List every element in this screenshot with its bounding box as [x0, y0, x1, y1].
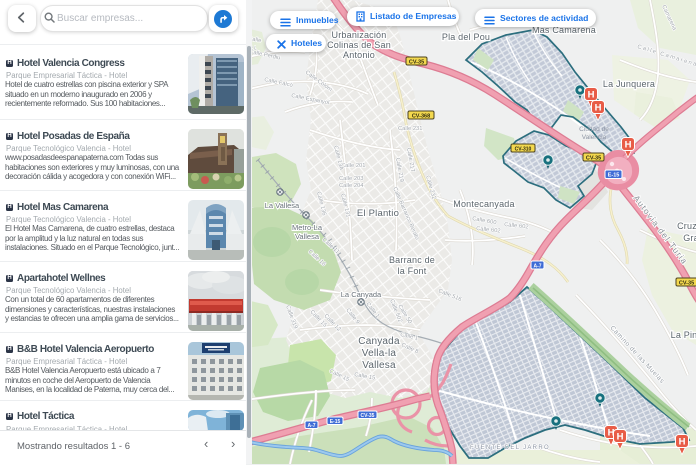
svg-text:Urbanización: Urbanización	[332, 30, 387, 40]
svg-text:A-7: A-7	[307, 423, 315, 429]
svg-text:Barranc de: Barranc de	[389, 255, 435, 265]
svg-text:Vallesa: Vallesa	[362, 360, 396, 371]
svg-text:Calle 203: Calle 203	[339, 176, 364, 182]
svg-text:El Plantio: El Plantio	[357, 208, 399, 219]
svg-text:La Vallesa: La Vallesa	[265, 201, 300, 210]
svg-text:CV-368: CV-368	[412, 113, 430, 119]
svg-text:Montecanyada: Montecanyada	[453, 199, 514, 209]
svg-text:Gra: Gra	[683, 233, 696, 243]
svg-text:A-7: A-7	[533, 263, 541, 269]
svg-text:Vallesa: Vallesa	[295, 232, 320, 241]
svg-text:Calle 201: Calle 201	[341, 163, 366, 169]
svg-text:Pla del Pou: Pla del Pou	[442, 32, 490, 42]
svg-text:Calle 231: Calle 231	[398, 126, 423, 132]
svg-text:FUENTE DEL JARRO: FUENTE DEL JARRO	[470, 445, 550, 451]
svg-text:Canyada: Canyada	[358, 336, 400, 347]
svg-text:CV-310: CV-310	[515, 146, 532, 152]
svg-text:Colinas de San: Colinas de San	[327, 40, 391, 50]
svg-text:E-15: E-15	[330, 419, 341, 425]
svg-text:Valencia: Valencia	[582, 134, 607, 141]
svg-text:Calle 204: Calle 204	[339, 183, 364, 189]
svg-text:CV-35: CV-35	[679, 280, 694, 286]
svg-text:La Pin: La Pin	[671, 330, 696, 340]
svg-text:CV-35: CV-35	[361, 413, 375, 419]
svg-text:Ciudad de: Ciudad de	[579, 126, 609, 133]
svg-text:CV-35: CV-35	[409, 59, 424, 65]
svg-text:la Font: la Font	[398, 266, 427, 276]
svg-text:La Junquera: La Junquera	[603, 79, 655, 89]
svg-text:E-15: E-15	[608, 173, 620, 179]
svg-text:Metro-La: Metro-La	[292, 223, 323, 232]
svg-text:Cruz: Cruz	[677, 221, 696, 231]
svg-text:La Canyada: La Canyada	[341, 290, 382, 299]
svg-text:Vella-la: Vella-la	[362, 348, 397, 359]
svg-text:CV-35: CV-35	[586, 155, 601, 161]
svg-text:Antonio: Antonio	[343, 50, 375, 60]
